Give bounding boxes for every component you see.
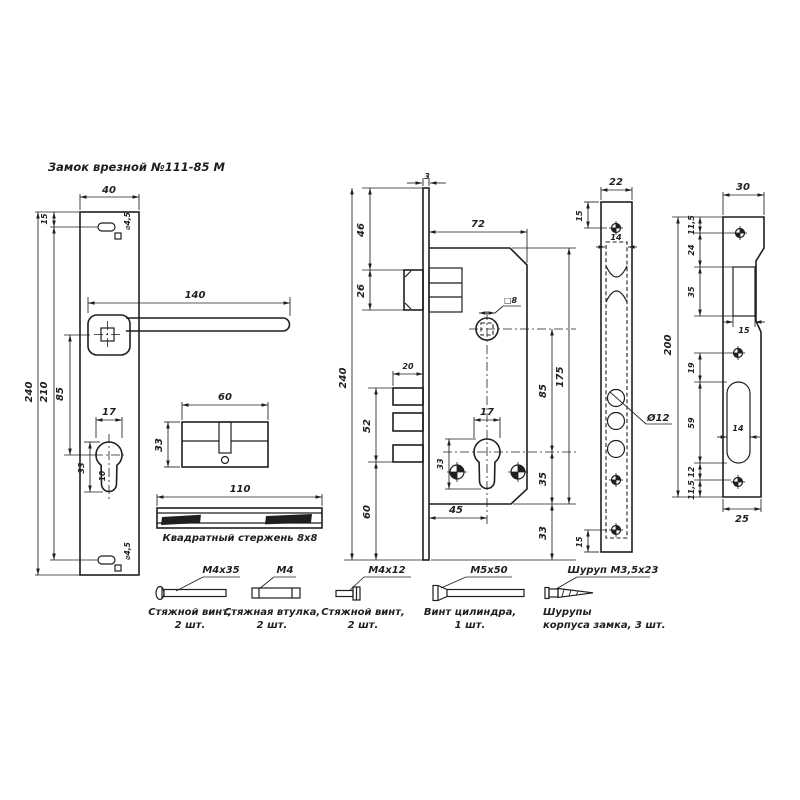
strike-screw-mid xyxy=(731,346,745,360)
handle-lever xyxy=(88,315,290,355)
fastener-m5x50: M5x50 Винт цилиндра, 1 шт. xyxy=(424,565,524,631)
dim-bottom-hole-dia: ⌀4,5 xyxy=(123,542,132,560)
dim-top-offset: 15 xyxy=(40,213,49,225)
dim-faceplate-thickness: 3 xyxy=(424,172,430,181)
cylinder-cam-slot xyxy=(219,422,231,453)
dim-opening-width: 15 xyxy=(738,326,750,335)
view-lock-body: 3 46 26 240 72 2 xyxy=(338,172,576,560)
dim-strike-hole-to-opening: 24 xyxy=(687,244,696,256)
fastener-5-name: Шурупы xyxy=(543,607,592,618)
dim-cyl-height: 33 xyxy=(436,458,445,470)
dim-case-height: 175 xyxy=(555,367,566,388)
dim-top-hole-dia: ⌀4,5 xyxy=(123,212,132,230)
dim-rod-length: 110 xyxy=(230,484,251,495)
strike-screw-bottom xyxy=(731,475,745,489)
dim-keyhole-slot: 10 xyxy=(98,471,107,481)
fastener-3-name: Стяжной винт, xyxy=(321,607,405,618)
dim-bolt-throw: 20 xyxy=(402,362,414,371)
strike-bolt-slot xyxy=(727,382,750,463)
dim-strike-width: 30 xyxy=(736,182,750,193)
fastener-1-size: M4x35 xyxy=(202,565,239,576)
fastener-2-size: M4 xyxy=(277,565,294,576)
fastener-5-size: Шуруп М3,5х23 xyxy=(568,565,659,576)
faceplate-screw-mid xyxy=(609,473,623,487)
fastener-2-qty: 2 шт. xyxy=(257,620,288,631)
dim-body-height: 240 xyxy=(338,368,349,389)
fastener-m4x35: M4x35 Стяжной винт, 2 шт. xyxy=(148,565,240,631)
strike-latch-opening xyxy=(733,267,755,316)
square-rod-caption: Квадратный стержень 8х8 xyxy=(163,533,318,544)
fastener-4-size: M5x50 xyxy=(470,565,507,576)
cylinder-body xyxy=(182,422,268,467)
top-screw-slot: ⌀4,5 xyxy=(50,212,132,239)
dim-strike-to-slot: 19 xyxy=(687,362,696,374)
dim-bolt-hole-dia: Ø12 xyxy=(646,412,669,424)
latch-cutout-arc-bottom xyxy=(606,291,627,302)
dim-strike-slot-height: 59 xyxy=(687,417,696,429)
fastener-3-size: M4x12 xyxy=(368,565,405,576)
fastener-m4x12: M4x12 Стяжной винт, 2 шт. xyxy=(321,565,411,631)
dim-centers: 85 xyxy=(55,387,66,401)
bolt-hole-3 xyxy=(608,441,625,458)
dim-faceplate-inner-width: 14 xyxy=(610,233,622,242)
dim-cylinder-height: 33 xyxy=(154,438,165,452)
dim-top-to-latch: 46 xyxy=(356,223,367,238)
fastener-1-name: Стяжной винт, xyxy=(148,607,232,618)
dim-end: 33 xyxy=(538,526,549,540)
latch-follower xyxy=(429,268,462,312)
case-screw-right xyxy=(508,462,528,482)
keyhole-cutout xyxy=(94,434,124,500)
handle-plate-outline xyxy=(80,212,139,575)
dim-strike-top-hole: 11,5 xyxy=(687,215,696,235)
dim-plate-height: 240 xyxy=(24,382,35,403)
dim-keyhole-width: 17 xyxy=(102,407,116,418)
dim-centers-body: 85 xyxy=(538,384,549,398)
fastener-2-name: Стяжная втулка, xyxy=(224,607,320,618)
fasteners-row: M4x35 Стяжной винт, 2 шт. M4 Стяжная вту… xyxy=(148,565,665,631)
fastener-3-qty: 2 шт. xyxy=(348,620,379,631)
latch-bolt xyxy=(404,270,423,310)
fastener-1-qty: 2 шт. xyxy=(175,620,206,631)
fastener-4-name: Винт цилиндра, xyxy=(424,607,516,618)
dim-faceplate-width: 22 xyxy=(609,177,623,188)
dim-strike-slot-to-hole: 12 xyxy=(687,466,696,478)
dim-handle-length: 140 xyxy=(185,290,206,301)
spindle-hub xyxy=(469,311,576,527)
view-strike-plate: 30 15 14 11,5 24 35 19 xyxy=(663,182,765,525)
dim-keyhole-height: 33 xyxy=(77,462,86,474)
dim-latch-height: 26 xyxy=(356,284,367,298)
euro-cylinder-profile xyxy=(443,439,576,488)
dim-plate-width: 40 xyxy=(101,185,116,196)
fastener-5-qty: корпуса замка, 3 шт. xyxy=(543,620,666,631)
dim-bottom: 60 xyxy=(362,505,373,519)
dim-bolt-zone: 52 xyxy=(362,419,373,433)
view-cylinder: 60 33 xyxy=(154,392,268,467)
fastener-wood-screw: Шуруп М3,5х23 Шурупы корпуса замка, 3 шт… xyxy=(543,565,666,631)
fastener-4-qty: 1 шт. xyxy=(455,620,486,631)
lock-drawing: Замок врезной №111-85 М 40 ⌀4,5 240 15 2… xyxy=(0,0,800,800)
faceplate-screw-bottom xyxy=(609,523,623,537)
dim-hole-spacing: 210 xyxy=(39,382,50,403)
technical-drawing-sheet: Замок врезной №111-85 М 40 ⌀4,5 240 15 2… xyxy=(0,0,800,800)
dim-strike-bottom-hole: 11,5 xyxy=(687,480,696,500)
strike-plate-outline xyxy=(723,217,764,497)
bottom-screw-slot: ⌀4,5 xyxy=(50,542,132,571)
dim-strike-opening-height: 35 xyxy=(687,286,696,298)
cylinder-screw-hole xyxy=(222,457,229,464)
latch-cutout-arc-top xyxy=(606,266,627,277)
dim-faceplate-bottom-screw: 15 xyxy=(575,536,584,548)
strike-screw-top xyxy=(733,226,747,240)
faceplate-strip xyxy=(423,188,429,560)
dim-cyl-to-bottom: 35 xyxy=(538,472,549,486)
dim-strike-height: 200 xyxy=(663,335,674,356)
view-faceplate: 22 15 14 Ø12 15 xyxy=(575,177,672,552)
dim-cylinder-length: 60 xyxy=(218,392,232,403)
deadbolt-stack xyxy=(393,388,423,462)
dim-backset: 45 xyxy=(448,505,463,516)
case-screw-left xyxy=(447,462,467,482)
dim-slot-width: 14 xyxy=(732,424,744,433)
dim-strike-bottom-width: 25 xyxy=(735,514,749,525)
drawing-title: Замок врезной №111-85 М xyxy=(48,160,226,174)
dim-spindle-square: □8 xyxy=(504,296,518,305)
view-square-rod: 110 Квадратный стержень 8х8 xyxy=(157,484,322,544)
bolt-hole-2 xyxy=(608,413,625,430)
dim-faceplate-top-screw: 15 xyxy=(575,210,584,222)
dim-body-depth: 72 xyxy=(471,219,485,230)
dim-cyl-width: 17 xyxy=(480,407,494,418)
